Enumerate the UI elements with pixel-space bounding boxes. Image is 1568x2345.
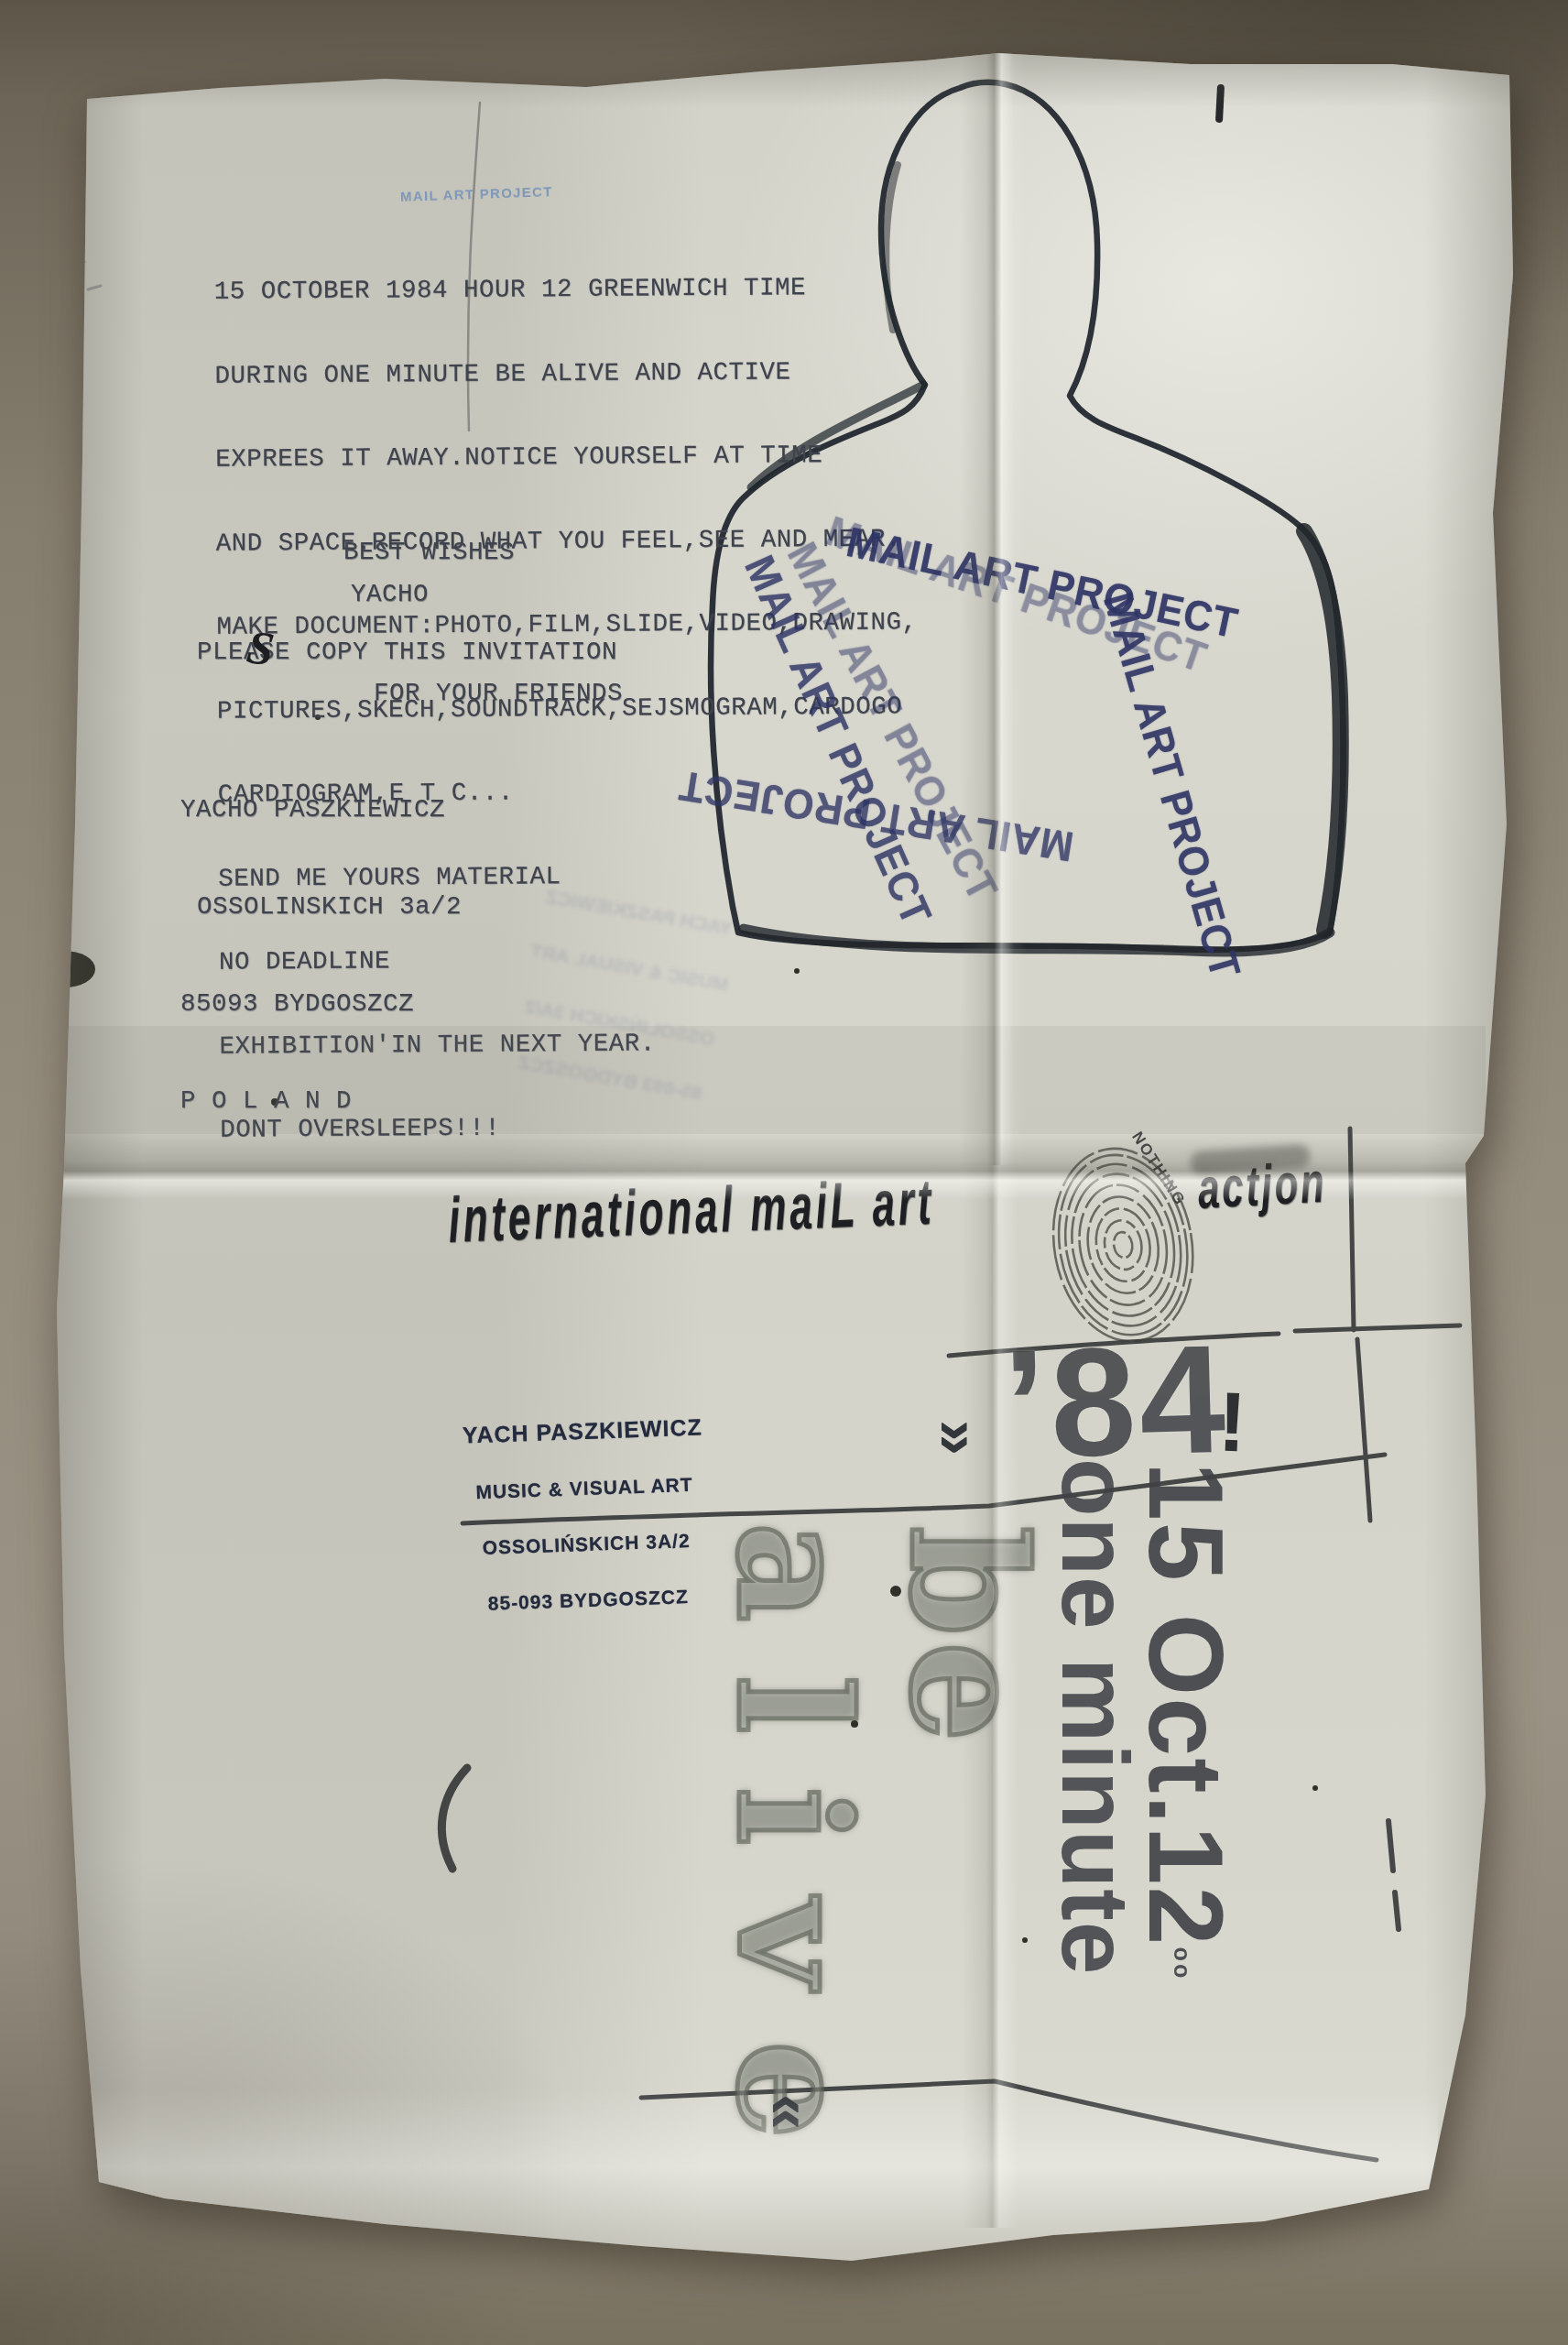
letter-line: EXPREES IT AWAY.NOTICE YOURSELF AT TIME bbox=[215, 441, 916, 474]
address-line: 85093 BYDGOSZCZ bbox=[180, 983, 462, 1024]
chevron-down-icon: » bbox=[927, 1420, 991, 1456]
handwritten-left-arc bbox=[441, 1768, 467, 1869]
sender-rubber-stamp: YACH PASZKIEWICZ MUSIC & VISUAL ART OSSO… bbox=[458, 1380, 713, 1648]
sender-stamp-line: YACH PASZKIEWICZ bbox=[459, 1413, 705, 1447]
letter-line: 15 OCTOBER 1984 HOUR 12 GREENWICH TIME bbox=[214, 273, 915, 306]
table-rule-right-vertical bbox=[1350, 1129, 1370, 1521]
exclamation-mark: ! bbox=[1216, 1379, 1247, 1464]
stencil-word-alive: alive bbox=[716, 1522, 870, 2192]
fingerprint-icon bbox=[1016, 1126, 1180, 1336]
chevron-up-icon: « bbox=[758, 2094, 822, 2130]
address-line: OSSOLINSKICH 3a/2 bbox=[197, 886, 462, 927]
copy-request-line2: FOR YOUR FRIENDS bbox=[374, 680, 623, 708]
letter-closing: BEST WISHES bbox=[343, 539, 515, 567]
letter-signature: YACHO bbox=[351, 581, 429, 609]
pencil-squiggles bbox=[64, 262, 101, 289]
superscript-oo: oo bbox=[1170, 1947, 1195, 1980]
table-rule-top-right bbox=[1295, 1325, 1460, 1331]
sender-stamp-line: 85-093 BYDGOSZCZ bbox=[465, 1584, 712, 1615]
rotated-date-15-oct-12: 15 Oct.12oo bbox=[1133, 1462, 1238, 1980]
sender-address-block: YACHO PASZKIEWICZ OSSOLINSKICH 3a/2 8509… bbox=[180, 733, 462, 1177]
folded-paper-sheet: MAIL ART PROJECT 15 OCTOBER 1984 HOUR 12… bbox=[0, 0, 1568, 2345]
paper-wrapper: MAIL ART PROJECT 15 OCTOBER 1984 HOUR 12… bbox=[0, 0, 1568, 2345]
sender-stamp-line: MUSIC & VISUAL ART bbox=[462, 1472, 708, 1503]
address-line: P O L A N D bbox=[180, 1080, 462, 1121]
dashed-right-bracket bbox=[1388, 1821, 1399, 1929]
rotated-one-minute: one minute bbox=[1048, 1458, 1143, 1976]
address-line: YACHO PASZKIEWICZ bbox=[180, 789, 462, 830]
stencil-word-be: be bbox=[888, 1526, 1046, 1748]
silhouette-heavy-right-edge bbox=[1304, 531, 1341, 931]
letter-line: DURING ONE MINUTE BE ALIVE AND ACTIVE bbox=[214, 357, 915, 390]
sender-stamp-line: OSSOLIŃSKICH 3A/2 bbox=[463, 1528, 710, 1559]
sender-stamp-mirror-ghost: YACH PASZKIEWICZ MUSIC & VISUAL ART OSSO… bbox=[482, 847, 768, 1142]
photo-of-mail-art-document: MAIL ART PROJECT 15 OCTOBER 1984 HOUR 12… bbox=[0, 0, 1568, 2345]
